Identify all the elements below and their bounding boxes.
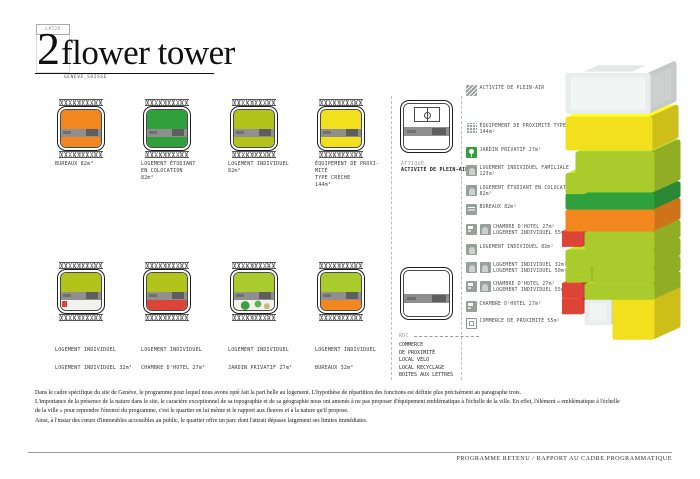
service-core xyxy=(234,129,274,137)
floorplan-rdc xyxy=(400,267,453,320)
creche-icon xyxy=(466,123,477,134)
footer-rule xyxy=(28,452,672,453)
balcony-truss-icon xyxy=(319,262,363,269)
footer-caption: PROGRAMME RETENU / RAPPORT AU CADRE PROG… xyxy=(456,455,672,462)
service-core xyxy=(147,292,187,300)
service-core xyxy=(61,129,101,137)
plan-label: ÉQUIPEMENT DE PROXI-MITÉ TYPE CRECHE144m… xyxy=(315,161,407,189)
balcony-truss-icon xyxy=(145,314,189,321)
floorplan-attique xyxy=(400,100,453,153)
subtitle-location: GENÈVE_SUISSE xyxy=(64,75,107,80)
attique-label: ATTIQUE ACTIVITÉ DE PLEIN-AIR xyxy=(401,161,471,173)
shop-icon xyxy=(466,318,477,329)
balcony-truss-icon xyxy=(319,151,363,158)
plan-label: LOGEMENT INDIVIDUEL82m² xyxy=(228,161,320,175)
house-icon xyxy=(466,165,477,176)
service-core xyxy=(61,292,101,300)
balcony-truss-icon xyxy=(145,262,189,269)
balcony-truss-icon xyxy=(59,314,103,321)
service-core xyxy=(404,127,449,137)
service-core xyxy=(321,292,361,300)
floorplan-logement-etudiant: LOGEMENT ÉTUDIANTEN COLOCATION 82m² xyxy=(143,99,191,158)
balcony-truss-icon xyxy=(232,314,276,321)
plan-label: BUREAUX 82m² xyxy=(55,161,147,168)
tower-axonometric xyxy=(562,48,700,353)
house-icon xyxy=(480,262,491,273)
description-paragraph: Dans le cadre spécifique du site de Genè… xyxy=(35,389,677,426)
house-icon xyxy=(466,244,477,255)
plan-label: LOGEMENT INDIVIDUELCHAMBRE D'HOTEL 27m² xyxy=(141,347,233,383)
house-icon xyxy=(480,281,491,292)
floorplan-bureaux-32: LOGEMENT INDIVIDUELBUREAUX 32m² xyxy=(317,262,365,321)
service-core xyxy=(404,294,449,304)
private-garden xyxy=(234,300,274,310)
hotel-room-icon xyxy=(466,224,477,235)
presentation-board: L#725 2 flower tower GENÈVE_SUISSE BUREA… xyxy=(0,0,700,479)
office-icon xyxy=(466,204,477,215)
floorplan-bureaux: BUREAUX 82m² xyxy=(57,99,105,158)
floorplan-jardin-privatif: LOGEMENT INDIVIDUELJARDIN PRIVATIF 27m² xyxy=(230,262,278,321)
floorplan-logement-individuel: LOGEMENT INDIVIDUEL82m² xyxy=(230,99,278,158)
hotel-room-icon xyxy=(466,281,477,292)
floorplan-creche: ÉQUIPEMENT DE PROXI-MITÉ TYPE CRECHE144m… xyxy=(317,99,365,158)
balcony-truss-icon xyxy=(59,99,103,106)
balcony-truss-icon xyxy=(59,151,103,158)
title-number: 2 xyxy=(37,26,60,72)
balcony-truss-icon xyxy=(232,151,276,158)
dashed-divider xyxy=(391,96,392,380)
house-icon xyxy=(466,185,477,196)
floorplan-chambre-hotel: LOGEMENT INDIVIDUELCHAMBRE D'HOTEL 27m² xyxy=(143,262,191,321)
service-core xyxy=(234,292,274,300)
floorplan-logement-32: LOGEMENT INDIVIDUELLOGEMENT INDIVIDUEL 3… xyxy=(57,262,105,321)
balcony-truss-icon xyxy=(232,99,276,106)
sports-field-icon xyxy=(414,107,440,122)
rdc-label: RDC COMMERCE DE PROXIMITÉ LOCAL VÉLO LOC… xyxy=(399,333,479,380)
hotel-room-icon xyxy=(466,301,477,312)
page-title: 2 flower tower xyxy=(37,26,235,72)
plan-label: LOGEMENT INDIVIDUELJARDIN PRIVATIF 27m² xyxy=(228,347,320,383)
title-text: flower tower xyxy=(61,35,235,70)
plan-label: LOGEMENT INDIVIDUELBUREAUX 32m² xyxy=(315,347,407,383)
service-core xyxy=(321,129,361,137)
service-core xyxy=(147,129,187,137)
plein-air-icon xyxy=(466,85,477,96)
balcony-truss-icon xyxy=(319,99,363,106)
dashed-rule xyxy=(414,336,479,337)
balcony-truss-icon xyxy=(145,99,189,106)
balcony-truss-icon xyxy=(59,262,103,269)
plan-label: LOGEMENT ÉTUDIANTEN COLOCATION 82m² xyxy=(141,161,233,182)
tree-icon xyxy=(466,147,477,158)
balcony-truss-icon xyxy=(232,262,276,269)
plan-label: LOGEMENT INDIVIDUELLOGEMENT INDIVIDUEL 3… xyxy=(55,347,147,383)
balcony-truss-icon xyxy=(319,314,363,321)
balcony-truss-icon xyxy=(145,151,189,158)
house-icon xyxy=(480,224,491,235)
title-underline xyxy=(35,73,214,74)
house-icon xyxy=(466,262,477,273)
